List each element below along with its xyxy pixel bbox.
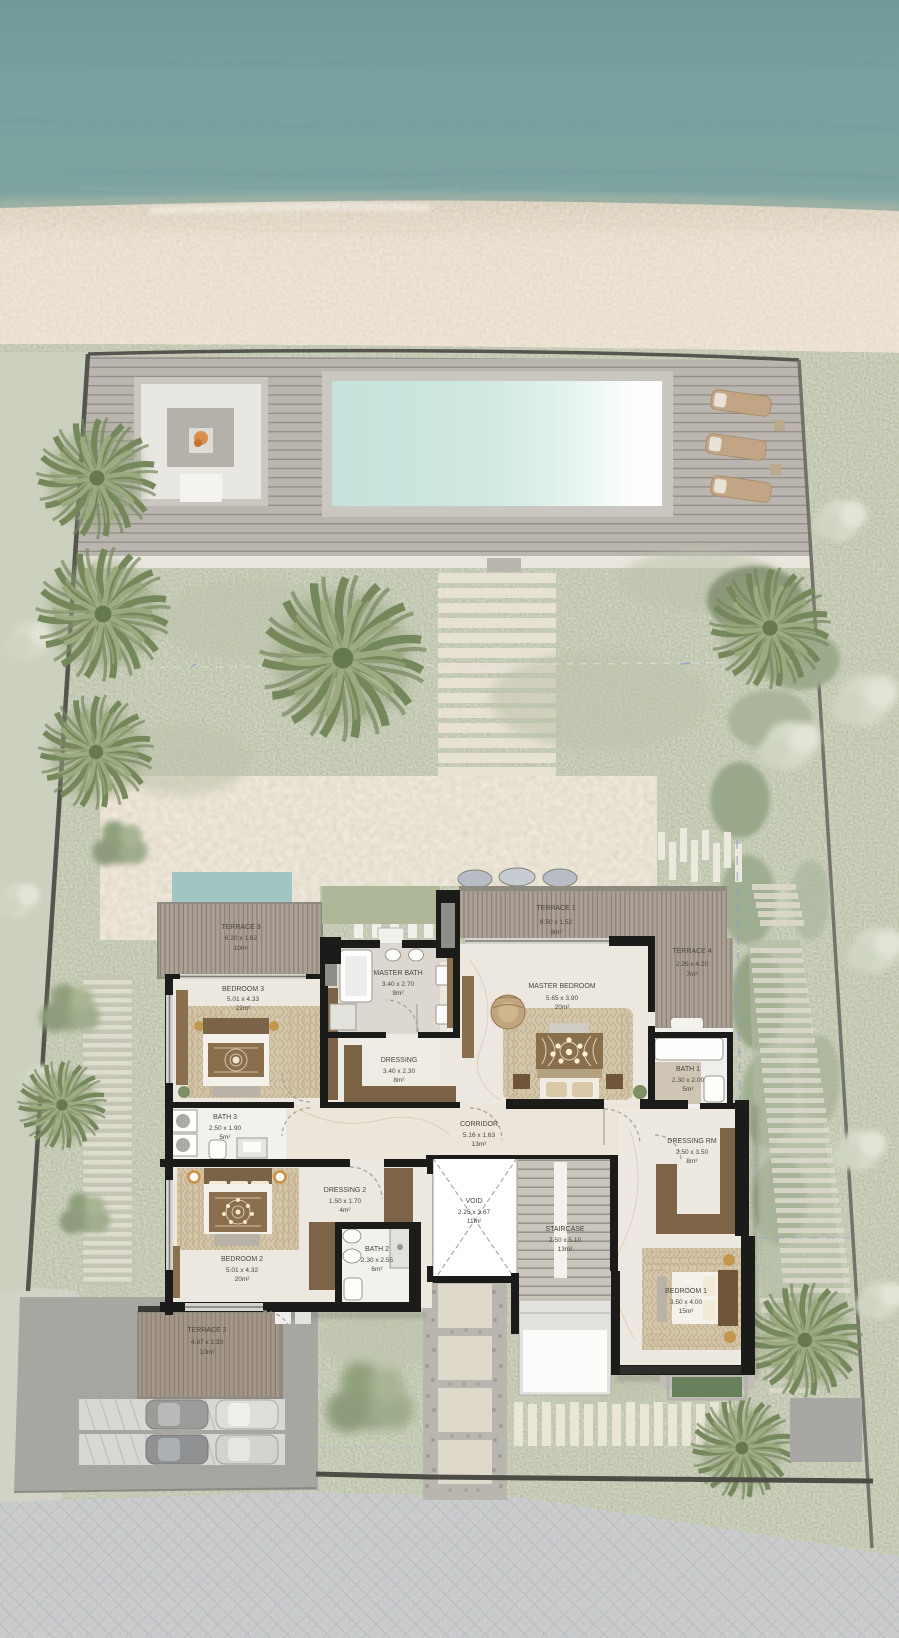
svg-text:1.50 x 1.70: 1.50 x 1.70 (329, 1198, 362, 1205)
svg-text:5.01 x 4.32: 5.01 x 4.32 (226, 1267, 259, 1274)
svg-text:2.50 x 3.50: 2.50 x 3.50 (676, 1149, 709, 1156)
svg-text:4m²: 4m² (339, 1207, 351, 1214)
svg-text:TERRACE 3: TERRACE 3 (221, 924, 260, 931)
svg-text:8m²: 8m² (393, 1077, 405, 1084)
svg-text:MASTER BEDROOM: MASTER BEDROOM (528, 983, 595, 990)
svg-text:2.30 x 2.00: 2.30 x 2.00 (672, 1077, 705, 1084)
svg-text:BATH 3: BATH 3 (213, 1114, 237, 1121)
svg-text:DRESSING RM: DRESSING RM (667, 1138, 717, 1145)
svg-text:2.50 x 5.10: 2.50 x 5.10 (549, 1237, 582, 1244)
svg-text:15m²: 15m² (679, 1308, 695, 1315)
svg-text:11m²: 11m² (467, 1218, 482, 1225)
svg-text:3.50 x 4.00: 3.50 x 4.00 (670, 1299, 703, 1306)
svg-text:2.25 x 3.67: 2.25 x 3.67 (458, 1209, 491, 1216)
svg-text:20m²: 20m² (235, 1276, 251, 1283)
svg-text:CORRIDOR: CORRIDOR (460, 1121, 498, 1128)
svg-text:6.20 x 1.62: 6.20 x 1.62 (225, 935, 258, 942)
svg-text:6m²: 6m² (371, 1266, 383, 1273)
svg-text:TERRACE 1: TERRACE 1 (536, 905, 575, 912)
svg-text:10m²: 10m² (200, 1349, 216, 1356)
svg-text:2.50 x 1.90: 2.50 x 1.90 (209, 1125, 242, 1132)
svg-text:13m²: 13m² (558, 1246, 574, 1253)
svg-text:BEDROOM 1: BEDROOM 1 (665, 1288, 707, 1295)
svg-text:20m²: 20m² (555, 1004, 571, 1011)
svg-text:6.50 x 1.52: 6.50 x 1.52 (540, 919, 573, 926)
svg-text:DRESSING: DRESSING (381, 1057, 418, 1064)
svg-text:5.65 x 3.90: 5.65 x 3.90 (546, 995, 579, 1002)
svg-text:VOID: VOID (465, 1198, 482, 1205)
svg-text:2.30 x 2.55: 2.30 x 2.55 (361, 1257, 394, 1264)
svg-text:2.25 x 4.20: 2.25 x 4.20 (676, 961, 709, 968)
svg-text:BEDROOM 2: BEDROOM 2 (221, 1256, 263, 1263)
svg-text:BEDROOM 3: BEDROOM 3 (222, 986, 264, 993)
svg-text:5.01 x 4.33: 5.01 x 4.33 (227, 996, 260, 1003)
svg-text:STAIRCASE: STAIRCASE (545, 1226, 584, 1233)
svg-text:9m²: 9m² (550, 929, 562, 936)
svg-text:22m²: 22m² (236, 1005, 252, 1012)
svg-text:13m²: 13m² (472, 1141, 488, 1148)
svg-text:9m²: 9m² (392, 990, 404, 997)
svg-text:5m²: 5m² (219, 1134, 231, 1141)
svg-text:10m²: 10m² (234, 945, 250, 952)
svg-text:TERRACE 2: TERRACE 2 (187, 1327, 226, 1334)
svg-text:4.87 x 2.33: 4.87 x 2.33 (191, 1339, 224, 1346)
svg-text:TERRACE 4: TERRACE 4 (672, 948, 711, 955)
svg-text:BATH 2: BATH 2 (365, 1246, 389, 1253)
svg-text:DRESSING 2: DRESSING 2 (324, 1187, 367, 1194)
svg-text:8m²: 8m² (686, 1158, 698, 1165)
svg-text:3.40 x 2.70: 3.40 x 2.70 (382, 981, 415, 988)
svg-text:MASTER BATH: MASTER BATH (373, 970, 422, 977)
svg-text:5.16 x 1.63: 5.16 x 1.63 (463, 1132, 496, 1139)
svg-text:5m²: 5m² (682, 1086, 694, 1093)
svg-text:3.40 x 2.30: 3.40 x 2.30 (383, 1068, 416, 1075)
svg-text:7m²: 7m² (686, 971, 698, 978)
svg-text:BATH 1: BATH 1 (676, 1066, 700, 1073)
